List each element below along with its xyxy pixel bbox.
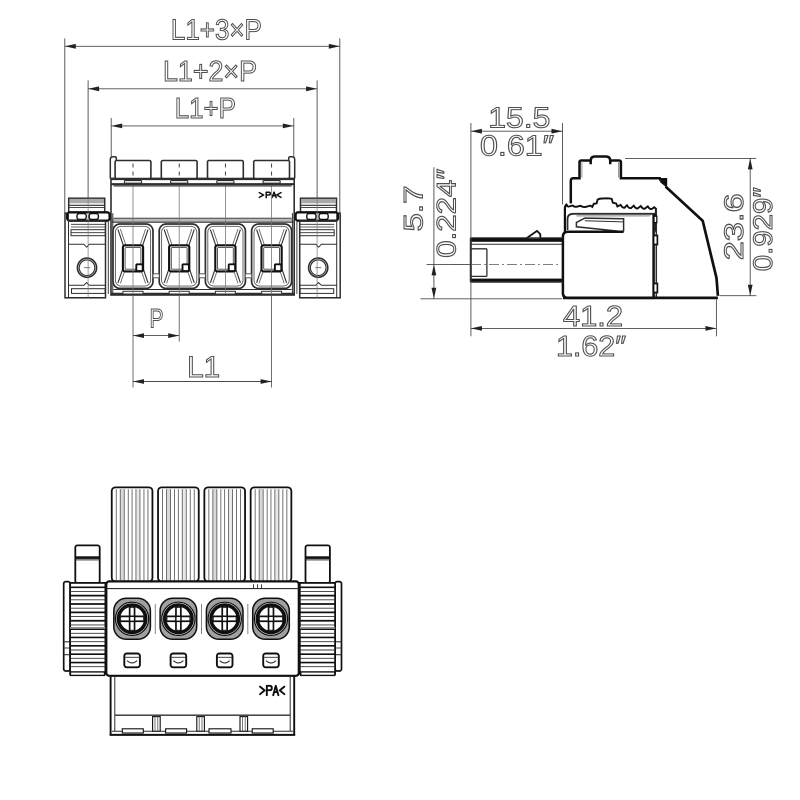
svg-text:0.224″: 0.224″ — [432, 168, 462, 258]
svg-text:L1+2×P: L1+2×P — [163, 56, 257, 88]
svg-text:5.7: 5.7 — [399, 186, 429, 232]
svg-text:41.2: 41.2 — [563, 301, 623, 333]
svg-text:0.61″: 0.61″ — [480, 130, 554, 162]
svg-text:P: P — [150, 304, 164, 334]
svg-text:23.6: 23.6 — [719, 193, 749, 260]
svg-text:L1+P: L1+P — [175, 93, 236, 125]
svg-text:0.929″: 0.929″ — [748, 187, 778, 271]
svg-text:L1: L1 — [187, 351, 220, 384]
svg-text:1.62″: 1.62″ — [556, 331, 626, 363]
svg-text:L1+3×P: L1+3×P — [171, 14, 262, 46]
